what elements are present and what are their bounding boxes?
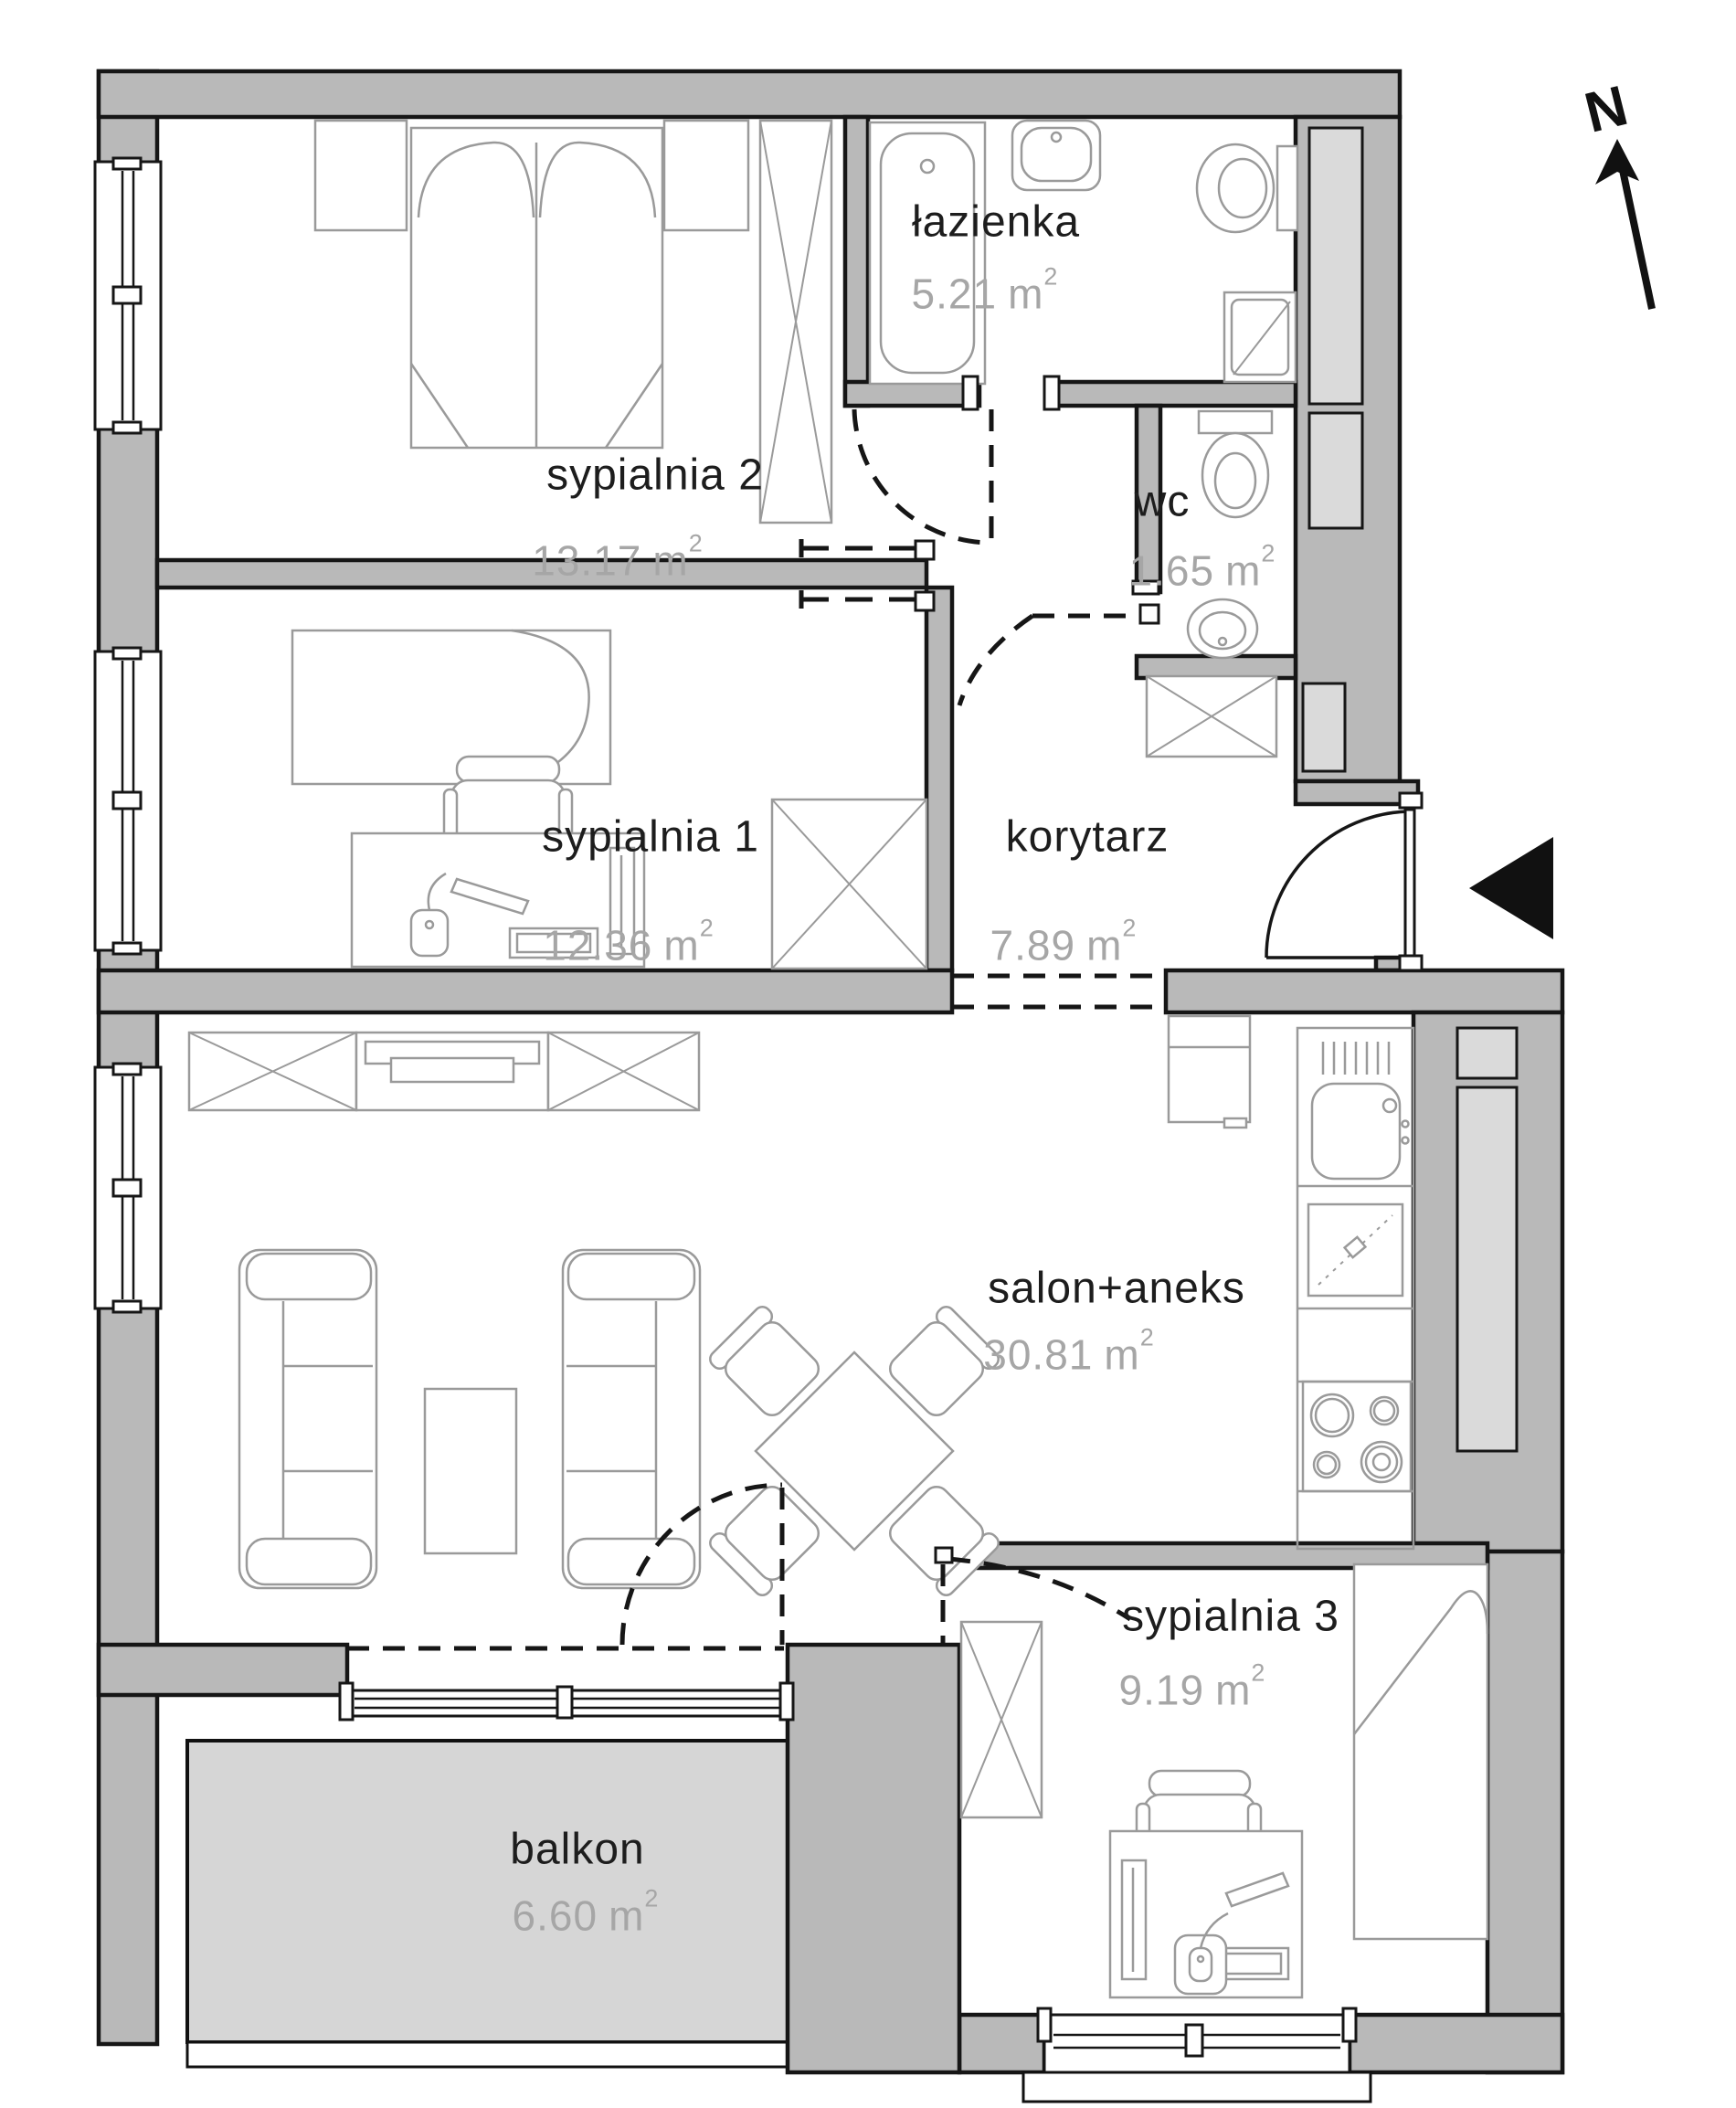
wc-fixtures bbox=[1188, 411, 1272, 658]
salon-furniture bbox=[189, 1033, 1001, 1598]
room-name-sypialnia1: sypialnia 1 bbox=[542, 812, 759, 863]
coffee-table-icon bbox=[425, 1389, 516, 1553]
cutting-board-icon bbox=[1308, 1204, 1403, 1296]
open-passage-icon bbox=[952, 976, 1166, 1007]
room-area-balkon: 6.60m2 bbox=[513, 1885, 660, 1941]
bathroom-fixtures bbox=[870, 121, 1297, 384]
single-bed-icon bbox=[1354, 1564, 1487, 1939]
room-area-lazienka: 5.21m2 bbox=[912, 263, 1059, 319]
room-name-lazienka: łazienka bbox=[912, 197, 1080, 248]
room-name-sypialnia2: sypialnia 2 bbox=[546, 450, 764, 501]
room-area-korytarz: 7.89m2 bbox=[990, 915, 1138, 970]
washing-machine-icon bbox=[1224, 292, 1296, 382]
north-arrow-icon bbox=[1595, 139, 1652, 309]
room-name-wc: wc bbox=[1135, 477, 1191, 527]
room-name-balkon: balkon bbox=[510, 1825, 644, 1875]
room-area-salon: 30.81m2 bbox=[983, 1324, 1154, 1380]
nightstand-icon bbox=[664, 121, 748, 230]
small-sink-icon bbox=[1188, 599, 1257, 658]
room-area-sypialnia1: 12.36m2 bbox=[543, 915, 714, 970]
wardrobe-icon bbox=[760, 121, 831, 523]
window-bedroom1-icon bbox=[95, 648, 161, 954]
room-name-salon: salon+aneks bbox=[988, 1264, 1245, 1314]
window-salon-icon bbox=[95, 1064, 161, 1312]
toilet-icon bbox=[1197, 144, 1297, 232]
window-bedroom2-icon bbox=[95, 158, 161, 433]
sofa-icon bbox=[239, 1250, 376, 1588]
room-area-sypialnia3: 9.19m2 bbox=[1119, 1659, 1266, 1715]
dining-set-icon bbox=[707, 1304, 1002, 1599]
single-bed-icon bbox=[292, 630, 610, 784]
window-bedroom3-icon bbox=[1023, 2008, 1371, 2102]
fridge-icon bbox=[1169, 1016, 1250, 1128]
wardrobe-icon bbox=[772, 800, 926, 969]
toilet-icon bbox=[1199, 411, 1272, 517]
kitchen-sink-icon bbox=[1312, 1042, 1409, 1179]
entrance-door-icon bbox=[1266, 793, 1422, 970]
floor-plan: sypialnia 2 13.17m2 łazienka 5.21m2 wc 1… bbox=[0, 0, 1736, 2108]
room-area-wc: 1.65m2 bbox=[1129, 540, 1276, 596]
bathtub-icon bbox=[870, 122, 985, 384]
nightstand-icon bbox=[315, 121, 407, 230]
entrance-arrow-icon bbox=[1469, 837, 1553, 939]
floor-plan-drawing bbox=[0, 0, 1736, 2108]
sofa-icon bbox=[563, 1250, 700, 1588]
room-area-sypialnia2: 13.17m2 bbox=[532, 530, 703, 586]
wc-door-swing-icon bbox=[959, 581, 1159, 705]
balcony-area bbox=[187, 1741, 803, 2067]
wardrobe-icon bbox=[961, 1622, 1042, 1817]
desk-icon bbox=[1110, 1831, 1302, 1997]
double-bed-icon bbox=[411, 128, 662, 448]
tv-unit-icon bbox=[189, 1033, 699, 1110]
stove-icon bbox=[1303, 1382, 1411, 1491]
room-name-sypialnia3: sypialnia 3 bbox=[1122, 1592, 1339, 1642]
balcony-door-sill-icon bbox=[340, 1683, 793, 1720]
corridor-wardrobe-icon bbox=[1147, 676, 1276, 757]
room-name-korytarz: korytarz bbox=[1006, 812, 1170, 863]
sink-icon bbox=[1012, 121, 1100, 190]
